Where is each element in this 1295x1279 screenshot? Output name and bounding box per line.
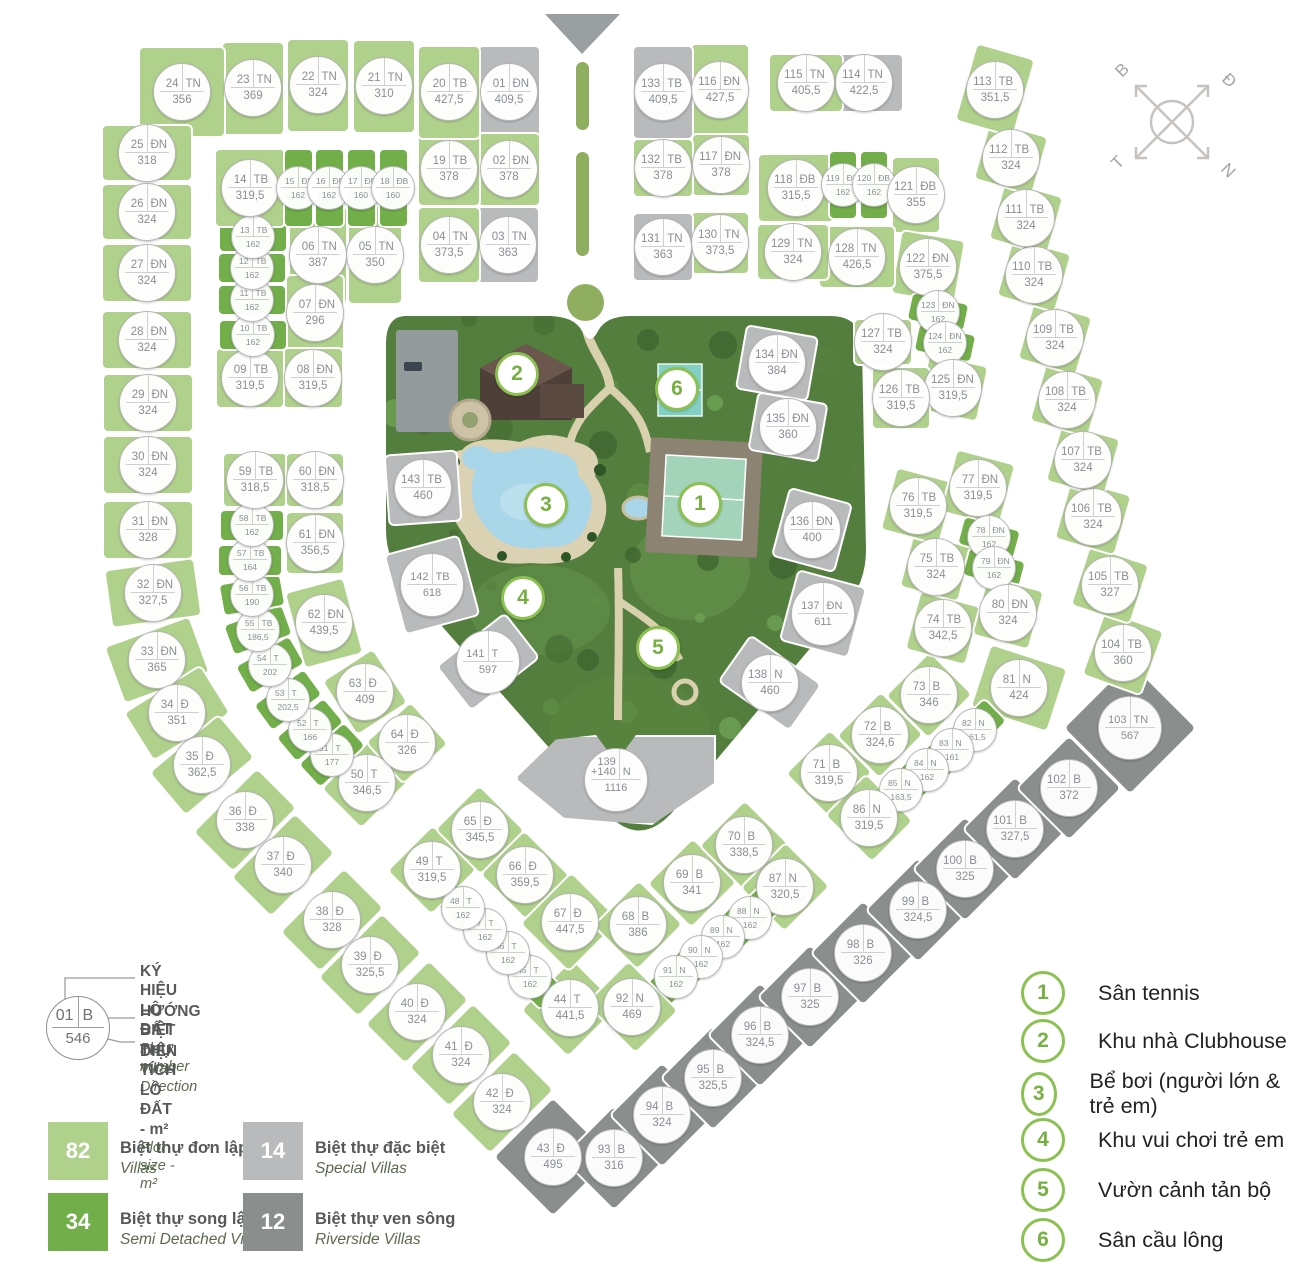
plot-label-33: 33ĐN365 xyxy=(128,631,186,689)
plot-label-66: 66Đ359,5 xyxy=(496,846,554,904)
plot-number: 13 xyxy=(236,216,254,236)
plot-direction: B xyxy=(663,1087,685,1114)
plot-label-138: 138N460 xyxy=(741,654,799,712)
plot-direction: ĐN xyxy=(325,595,347,622)
plot-number: 44 xyxy=(548,980,571,1007)
plot-direction: TB xyxy=(919,478,941,505)
plot-label-76: 76TB319,5 xyxy=(889,477,947,535)
plot-area: 328 xyxy=(120,530,176,559)
plot-area: 324 xyxy=(1006,275,1062,304)
plot-area: 346,5 xyxy=(339,783,395,812)
plot-area: 162 xyxy=(442,908,484,930)
plot-label-29: 29ĐN324 xyxy=(119,374,177,432)
plot-direction: B xyxy=(1070,760,1091,787)
plot-label-26: 26ĐN324 xyxy=(118,183,176,241)
plot-label-18: 18ĐB160 xyxy=(371,166,415,210)
plot-number: 23 xyxy=(231,60,254,87)
plot-number: 75 xyxy=(914,539,937,566)
plot-area: 162 xyxy=(231,525,273,547)
plot-direction: TB xyxy=(1068,372,1089,399)
plot-direction: ĐN xyxy=(510,64,532,91)
plot-area: 202,5 xyxy=(267,700,309,722)
plot-direction: ĐN xyxy=(929,239,950,266)
plot-number: 40 xyxy=(395,984,418,1011)
plot-direction: ĐN xyxy=(778,335,799,362)
plot-area: 324 xyxy=(855,342,911,371)
plot-number: 64 xyxy=(385,715,408,742)
plot-area: 495 xyxy=(525,1157,581,1186)
plot-direction: N xyxy=(677,956,694,976)
plot-label-42: 42Đ324 xyxy=(473,1073,531,1131)
plot-direction: T xyxy=(433,842,455,869)
plot-label-35: 35Đ362,5 xyxy=(173,736,231,794)
plot-label-28: 28ĐN324 xyxy=(118,311,176,369)
plot-label-69: 69B341 xyxy=(663,854,721,912)
plot-area: 186,5 xyxy=(237,630,279,652)
plot-number: 31 xyxy=(126,502,149,529)
plot-label-92: 92N469 xyxy=(603,978,661,1036)
plot-number: 25 xyxy=(125,125,148,152)
plot-number: 17 xyxy=(344,167,362,187)
plot-number: 133 xyxy=(641,64,664,91)
plot-direction: N xyxy=(1020,660,1042,687)
plot-label-19: 19TB378 xyxy=(420,140,478,198)
plot-number: 07 xyxy=(293,285,316,312)
plot-number: 117 xyxy=(699,137,722,164)
plot-label-37: 37Đ340 xyxy=(254,836,312,894)
plot-direction: TB xyxy=(944,600,966,627)
amenity-row-pool: 3 Bể bơi (người lớn & trẻ em) xyxy=(1021,1069,1295,1119)
plot-number: 114 xyxy=(842,55,865,82)
plot-direction: T xyxy=(531,956,548,976)
plot-label-113: 113TB351,5 xyxy=(966,61,1024,119)
plot-number: 38 xyxy=(310,892,333,919)
plot-area: 618 xyxy=(401,585,463,617)
plot-direction: T xyxy=(333,734,350,754)
plot-number: 77 xyxy=(956,460,979,487)
plot-label-73: 73B346 xyxy=(900,666,958,724)
plot-number: 130 xyxy=(698,215,721,242)
plot-number: 80 xyxy=(986,585,1009,612)
park-marker-3[interactable]: 3 xyxy=(524,483,568,527)
plot-area: 296 xyxy=(287,313,343,342)
plot-direction: TN xyxy=(450,217,472,244)
plot-area: 162 xyxy=(487,953,529,975)
plot-number: 29 xyxy=(126,375,149,402)
plot-label-109: 109TB324 xyxy=(1026,309,1084,367)
plot-area: 341 xyxy=(664,883,720,912)
plot-direction: T xyxy=(464,887,481,907)
plot-direction: B xyxy=(761,1007,783,1034)
plot-area: 324,5 xyxy=(890,910,946,939)
plot-area: 319,5 xyxy=(222,188,278,217)
plot-area: 324 xyxy=(389,1012,445,1041)
plot-number: 62 xyxy=(302,595,325,622)
plot-label-102: 102B372 xyxy=(1040,759,1098,817)
plot-area: 319,5 xyxy=(873,398,929,427)
plot-number: 03 xyxy=(486,217,509,244)
key-plot-number: 01 xyxy=(52,997,79,1027)
plot-number: 120 xyxy=(857,164,875,184)
legend-label-riverside: Biệt thự ven sông Riverside Villas xyxy=(315,1209,455,1251)
plot-label-24: 24TN356 xyxy=(153,63,211,121)
plot-number: 34 xyxy=(155,685,178,712)
park-marker-1[interactable]: 1 xyxy=(678,482,722,526)
plot-direction: TB xyxy=(251,160,273,187)
plot-direction: B xyxy=(745,817,767,844)
plot-label-03: 03TN363 xyxy=(479,216,537,274)
plot-direction: ĐN xyxy=(154,565,176,592)
plot-area: 324 xyxy=(119,212,175,241)
plot-number: 08 xyxy=(291,350,314,377)
plot-label-67: 67Đ447,5 xyxy=(541,893,599,951)
plot-area: 324 xyxy=(983,158,1039,187)
plot-direction: ĐN xyxy=(149,502,171,529)
plot-number: 72 xyxy=(858,707,881,734)
plot-area: 324 xyxy=(474,1102,530,1131)
plot-direction: ĐN xyxy=(721,62,743,89)
plot-area: 324 xyxy=(1039,400,1095,429)
plot-number: 103 xyxy=(1105,697,1131,727)
plot-area: 567 xyxy=(1099,728,1161,760)
plot-label-94: 94B324 xyxy=(633,1086,691,1144)
plot-label-104: 104TB360 xyxy=(1094,624,1152,682)
plot-area: 324 xyxy=(998,218,1054,247)
plot-number: 02 xyxy=(487,141,510,168)
plot-label-107: 107TB324 xyxy=(1054,431,1112,489)
plot-direction: Đ xyxy=(333,892,355,919)
plot-number: 134 xyxy=(755,335,778,362)
plot-area: 319,5 xyxy=(404,870,460,899)
legend-swatch-semi-detached: 34 xyxy=(48,1193,108,1251)
plot-label-21: 21TN310 xyxy=(355,57,413,115)
plot-area: 460 xyxy=(395,488,451,517)
plot-direction: TN xyxy=(807,55,829,82)
plot-area: 319,5 xyxy=(841,818,897,847)
plot-area: 324 xyxy=(290,85,346,114)
plot-number: 125 xyxy=(931,360,954,387)
plot-number: 94 xyxy=(640,1087,663,1114)
plot-number: 135 xyxy=(766,399,789,426)
key-plot-area: 546 xyxy=(47,1028,109,1060)
plot-area: 327,5 xyxy=(125,593,181,622)
plot-label-68: 68B386 xyxy=(609,896,667,954)
amenity-number: 5 xyxy=(1021,1168,1065,1212)
plot-area: 202 xyxy=(249,665,291,687)
plot-number: 69 xyxy=(670,855,693,882)
plot-area: 378 xyxy=(693,165,749,194)
plot-area: 356,5 xyxy=(287,543,343,572)
plot-number: 70 xyxy=(722,817,745,844)
plot-number: 96 xyxy=(738,1007,761,1034)
plot-label-115: 115TN405,5 xyxy=(777,54,835,112)
plot-number: 102 xyxy=(1047,760,1070,787)
plot-number: 26 xyxy=(125,184,148,211)
plot-number: 111 xyxy=(1004,190,1027,217)
plot-number: 109 xyxy=(1033,310,1056,337)
plot-number: 16 xyxy=(312,167,330,187)
plot-direction: N xyxy=(751,897,768,917)
plot-label-22: 22TN324 xyxy=(289,56,347,114)
plot-number: 85 xyxy=(884,769,902,789)
plot-number: 123 xyxy=(921,291,939,311)
plot-direction: Đ xyxy=(284,837,306,864)
plot-label-97: 97B325 xyxy=(781,968,839,1026)
plot-area: 409,5 xyxy=(635,92,691,121)
plot-number: 59 xyxy=(233,452,256,479)
plot-direction: Đ xyxy=(366,664,388,691)
plot-number: 116 xyxy=(698,62,721,89)
plot-area: 360 xyxy=(1095,653,1151,682)
plot-label-142: 142TB618 xyxy=(400,553,464,617)
plot-label-116: 116ĐN427,5 xyxy=(691,61,749,119)
plot-area: 427,5 xyxy=(421,92,477,121)
plot-direction: T xyxy=(509,932,526,952)
compass: B Đ T N xyxy=(1108,52,1238,192)
plot-area: 319,5 xyxy=(285,378,341,407)
plot-label-118: 118ĐB315,5 xyxy=(767,159,825,217)
plot-direction: TB xyxy=(902,370,923,397)
plot-area: 384 xyxy=(749,363,805,392)
plot-direction: TB xyxy=(884,314,905,341)
amenity-label: Khu nhà Clubhouse xyxy=(1098,1029,1287,1054)
plot-label-127: 127TB324 xyxy=(854,313,912,371)
plot-direction: TB xyxy=(664,140,685,167)
plot-label-132: 132TB378 xyxy=(634,139,692,197)
plot-number: 22 xyxy=(296,57,319,84)
plot-label-112: 112TB324 xyxy=(982,129,1040,187)
plot-direction: TB xyxy=(256,452,278,479)
plot-direction: ĐN xyxy=(789,399,810,426)
plot-label-96: 96B324,5 xyxy=(731,1006,789,1064)
plot-number: 35 xyxy=(180,737,203,764)
plot-area: 378 xyxy=(481,169,537,198)
plot-direction: ĐB xyxy=(875,164,891,184)
legend-label-special: Biệt thự đặc biệt Special Villas xyxy=(315,1138,445,1180)
plot-direction: B xyxy=(811,969,833,996)
plot-direction: ĐN xyxy=(316,452,338,479)
plot-direction: N xyxy=(928,749,945,769)
plot-area: 162 xyxy=(231,300,273,322)
plot-direction: Đ xyxy=(371,937,393,964)
plot-area: 342,5 xyxy=(915,628,971,657)
plot-number: 24 xyxy=(160,64,183,91)
park-marker-6[interactable]: 6 xyxy=(655,367,699,411)
plot-area: 422,5 xyxy=(836,83,892,112)
plot-label-103: 103TN567 xyxy=(1098,696,1162,760)
plot-direction: TN xyxy=(858,229,879,256)
plot-direction: ĐN xyxy=(813,502,834,529)
plot-number: 97 xyxy=(788,969,811,996)
plot-area: 324 xyxy=(1055,460,1111,489)
plot-direction: T xyxy=(489,631,514,661)
amenity-number: 3 xyxy=(1021,1072,1057,1116)
plot-number: 89 xyxy=(706,916,724,936)
plot-label-74: 74TB342,5 xyxy=(914,599,972,657)
plot-direction: ĐN xyxy=(149,437,171,464)
amenity-number: 4 xyxy=(1021,1118,1065,1162)
plot-area: 166 xyxy=(289,730,331,752)
plot-area: 400 xyxy=(784,530,840,559)
plot-label-58: 58TB162 xyxy=(230,503,274,547)
plot-direction: ĐN xyxy=(148,184,170,211)
plot-label-121: 121ĐB355 xyxy=(887,166,945,224)
plot-direction: TN xyxy=(183,64,205,91)
plot-area: 164 xyxy=(229,560,271,582)
key-sample-circle: 01 B 546 xyxy=(46,996,110,1060)
plot-number: 93 xyxy=(592,1130,615,1157)
plot-direction: Đ xyxy=(178,685,200,712)
plot-label-59: 59TB318,5 xyxy=(226,451,284,509)
plot-label-124: 124ĐN162 xyxy=(923,321,967,365)
plot-number: 121 xyxy=(894,167,917,194)
plot-direction: N xyxy=(976,709,993,729)
plot-direction: B xyxy=(864,925,886,952)
plot-area: 386 xyxy=(610,925,666,954)
key-row-size: DIỆN TÍCH LÔ ĐẤT - m² Plot size - m² xyxy=(140,1042,177,1193)
plot-number: 90 xyxy=(684,936,702,956)
plot-area: 427,5 xyxy=(692,90,748,119)
plot-area: 340 xyxy=(255,865,311,894)
plot-label-111: 111TB324 xyxy=(997,189,1055,247)
legend-swatch-villas: 82 xyxy=(48,1122,108,1180)
plot-direction: Đ xyxy=(408,715,430,742)
plot-number: 87 xyxy=(763,859,786,886)
plot-label-63: 63Đ409 xyxy=(336,663,394,721)
plot-number: 73 xyxy=(907,667,930,694)
key-plot-direction: B xyxy=(79,997,105,1027)
plot-area: 324 xyxy=(119,340,175,369)
plot-label-43: 43Đ495 xyxy=(524,1128,582,1186)
plot-number: 39 xyxy=(348,937,371,964)
plot-number: 37 xyxy=(261,837,284,864)
plot-direction: B xyxy=(693,855,715,882)
plot-area: 355 xyxy=(888,195,944,224)
plot-number: 99 xyxy=(896,882,919,909)
plot-area: 327,5 xyxy=(987,829,1043,858)
plot-area: 424 xyxy=(991,688,1047,717)
plot-number: 106 xyxy=(1071,489,1094,516)
amenity-label: Bể bơi (người lớn & trẻ em) xyxy=(1090,1069,1295,1119)
plot-direction: TB xyxy=(1094,489,1115,516)
plot-direction: TB xyxy=(424,460,445,487)
plot-label-60: 60ĐN318,5 xyxy=(286,451,344,509)
plot-direction: ĐN xyxy=(149,375,171,402)
plot-number: 124 xyxy=(928,322,946,342)
plot-number: 36 xyxy=(223,792,246,819)
plot-area: 362,5 xyxy=(174,765,230,794)
plot-number: 78 xyxy=(972,516,990,536)
plot-direction: B xyxy=(966,841,987,868)
plot-label-114: 114TN422,5 xyxy=(835,54,893,112)
plot-direction: ĐN xyxy=(995,547,1012,567)
plot-direction: TB xyxy=(1084,432,1105,459)
plot-direction: ĐN xyxy=(1009,585,1031,612)
plot-label-34: 34Đ351 xyxy=(148,684,206,742)
plot-direction: ĐN xyxy=(148,312,170,339)
plot-direction: ĐN xyxy=(990,516,1007,536)
plot-area: 325 xyxy=(937,869,993,898)
plot-number: 143 xyxy=(401,460,424,487)
plot-area: 447,5 xyxy=(542,922,598,951)
plot-label-05: 05TN350 xyxy=(346,226,404,284)
plot-direction: ĐN xyxy=(824,583,849,613)
plot-direction: N xyxy=(786,859,808,886)
plot-number: 43 xyxy=(531,1129,554,1156)
plot-label-77: 77ĐN319,5 xyxy=(949,459,1007,517)
park-marker-5[interactable]: 5 xyxy=(636,626,680,670)
plot-area: 326 xyxy=(379,743,435,772)
amenity-row-garden: 5 Vườn cảnh tản bộ xyxy=(1021,1168,1271,1212)
plot-number: 122 xyxy=(906,239,929,266)
plot-area: 469 xyxy=(604,1007,660,1036)
plot-area: 373,5 xyxy=(421,245,477,274)
plot-direction: ĐN xyxy=(316,515,338,542)
plot-area: 177 xyxy=(311,755,353,777)
plot-number: 67 xyxy=(548,894,571,921)
plot-area: 162 xyxy=(464,930,506,952)
plot-area: 1116 xyxy=(585,780,647,812)
plot-number: 119 xyxy=(826,164,844,184)
plot-area: 162 xyxy=(231,268,273,290)
plot-number: 104 xyxy=(1101,625,1124,652)
plot-area: 356 xyxy=(154,92,210,121)
plot-number: 21 xyxy=(362,58,385,85)
plot-label-129: 129TN324 xyxy=(764,223,822,281)
plot-direction: ĐN xyxy=(158,632,180,659)
plot-number: 138 xyxy=(748,655,771,682)
plot-number: 108 xyxy=(1045,372,1068,399)
plot-area: 363 xyxy=(480,245,536,274)
plot-number: 71 xyxy=(807,745,830,772)
plot-label-08: 08ĐN319,5 xyxy=(284,349,342,407)
plot-direction: ĐB xyxy=(797,160,819,187)
plot-area: 318,5 xyxy=(287,480,343,509)
plot-label-91: 91N162 xyxy=(654,955,698,999)
plot-number: 66 xyxy=(503,847,526,874)
site-plan: 01ĐN409,502ĐN37803TN36304TN373,505TN3500… xyxy=(0,0,1295,1279)
plot-direction: N xyxy=(771,655,792,682)
plot-area: 326 xyxy=(835,953,891,982)
plot-area: 324 xyxy=(980,613,1036,642)
plot-area: 359,5 xyxy=(497,875,553,904)
plot-number: 74 xyxy=(921,600,944,627)
plot-number: 68 xyxy=(616,897,639,924)
plot-direction: TN xyxy=(794,224,815,251)
plot-area: 460 xyxy=(742,683,798,712)
plot-number: 136 xyxy=(790,502,813,529)
plot-number: 33 xyxy=(135,632,158,659)
plot-label-101: 101B327,5 xyxy=(986,800,1044,858)
plot-direction: N xyxy=(870,790,892,817)
plot-area: 378 xyxy=(635,168,691,197)
plot-number: 98 xyxy=(841,925,864,952)
plot-number: 88 xyxy=(733,897,751,917)
plot-direction: Đ xyxy=(481,802,503,829)
plot-number: 83 xyxy=(935,729,953,749)
plot-area: 324 xyxy=(1065,517,1121,546)
plot-number: 101 xyxy=(993,801,1016,828)
plot-number: 41 xyxy=(439,1027,462,1054)
plot-direction: ĐN xyxy=(939,291,955,311)
plot-number: 76 xyxy=(896,478,919,505)
park-marker-4[interactable]: 4 xyxy=(501,576,545,620)
compass-west: T xyxy=(1108,152,1128,173)
amenity-label: Sân tennis xyxy=(1098,981,1200,1006)
plot-direction: ĐN xyxy=(316,285,338,312)
plot-area: 162 xyxy=(509,977,551,999)
park-marker-2[interactable]: 2 xyxy=(495,352,539,396)
